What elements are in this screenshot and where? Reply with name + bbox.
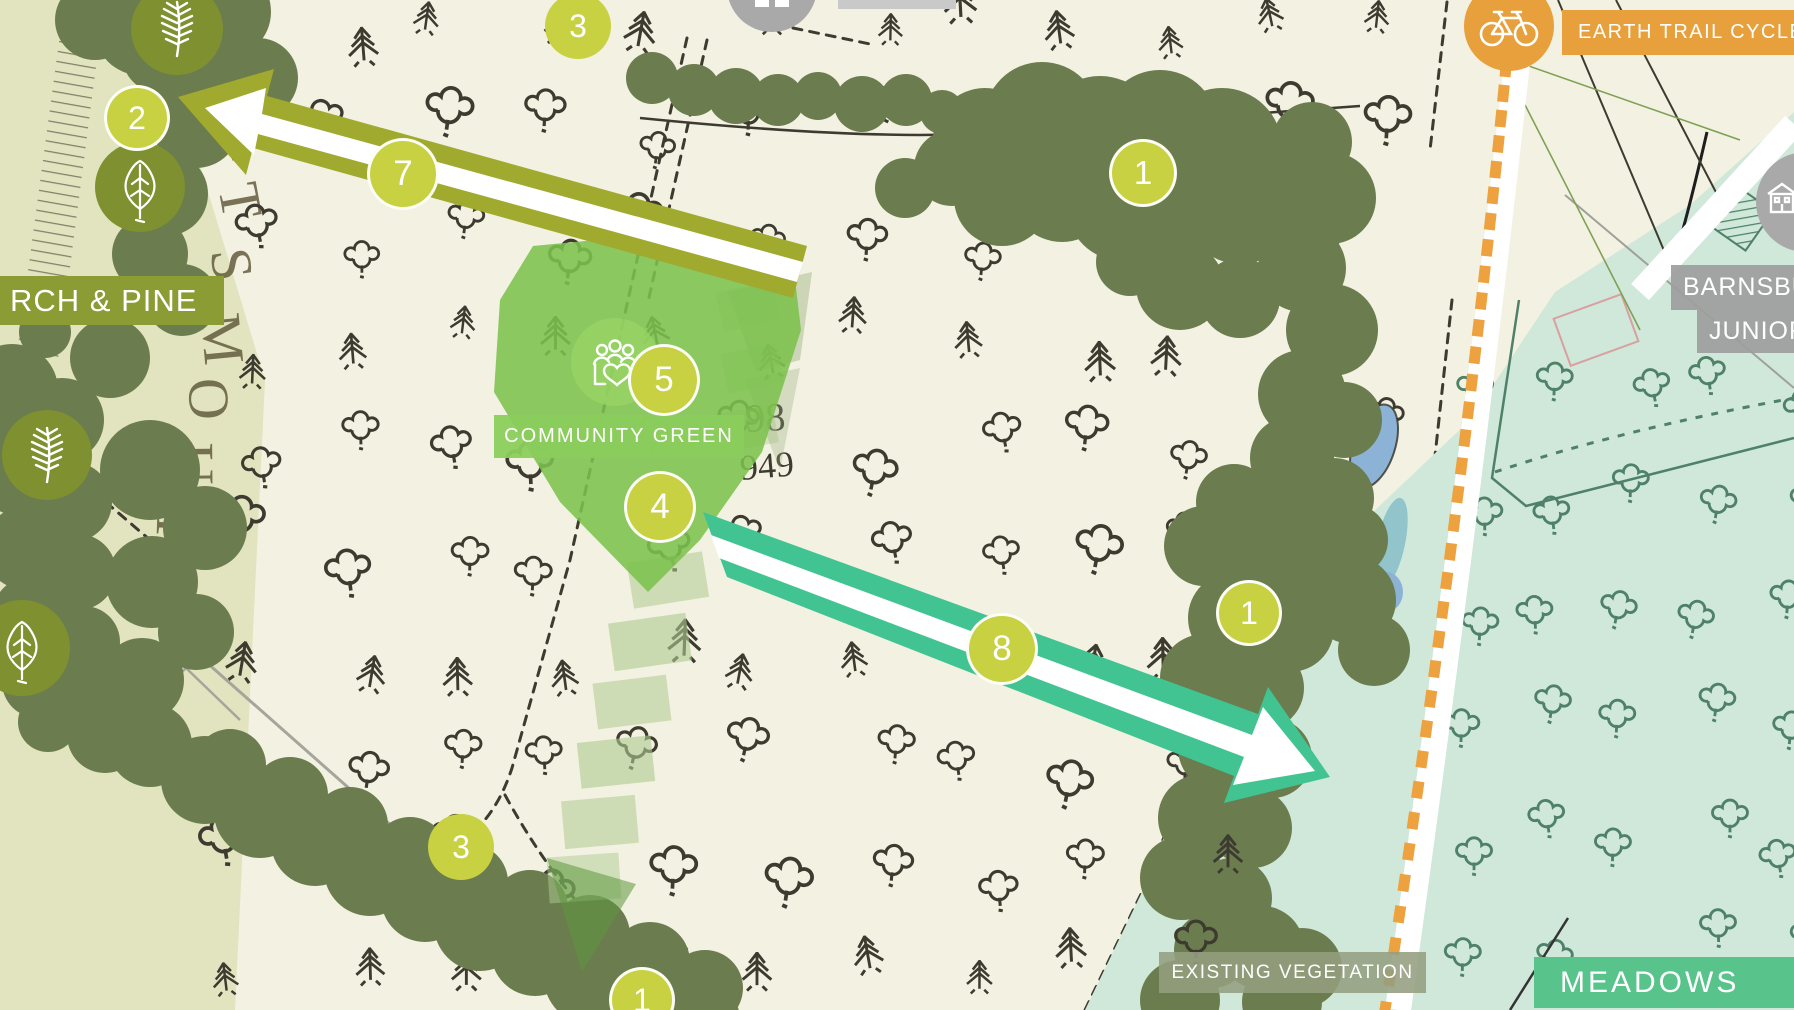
- pine-branch-icon: [131, 0, 223, 75]
- numbered-marker-2: 2: [104, 85, 170, 151]
- stepping-stone: [577, 735, 655, 788]
- map-label-junior: JUNIOR: [1697, 310, 1794, 353]
- numbered-marker-7: 7: [367, 138, 439, 210]
- map-label-meadows: MEADOWS: [1534, 957, 1794, 1008]
- map-label-community-green: COMMUNITY GREEN: [494, 415, 744, 458]
- map-label-earth-trail-cycle: EARTH TRAIL CYCLE: [1562, 10, 1794, 55]
- pine-branch-icon: [2, 410, 92, 500]
- map-label-birch-pine: RCH & PINE: [0, 276, 224, 325]
- numbered-marker-4: 4: [624, 471, 696, 543]
- numbered-marker-5: 5: [628, 344, 700, 416]
- viewpoint-icon: [727, 0, 817, 32]
- numbered-marker-1: 1: [1216, 580, 1282, 646]
- bicycle-icon: [1464, 0, 1554, 71]
- school-building-icon: [1756, 152, 1794, 252]
- map-artwork: PORTSMOUT 98949783: [0, 0, 1794, 1010]
- stepping-stone: [561, 795, 639, 849]
- numbered-marker-3: 3: [428, 814, 494, 880]
- masterplan-map-canvas[interactable]: PORTSMOUT 98949783: [0, 0, 1794, 1010]
- numbered-marker-8: 8: [966, 613, 1038, 685]
- birch-leaf-icon: [95, 142, 185, 232]
- map-label-existing-vegetation: EXISTING VEGETATION: [1159, 952, 1426, 993]
- old-map-road-name-letter: O: [175, 376, 242, 421]
- map-label-barnsbury: BARNSBURY: [1671, 265, 1794, 310]
- clipped-label-bar: [838, 0, 956, 9]
- birch-leaf-icon: [0, 600, 70, 696]
- stepping-stone: [592, 675, 671, 730]
- numbered-marker-1: 1: [1109, 139, 1177, 207]
